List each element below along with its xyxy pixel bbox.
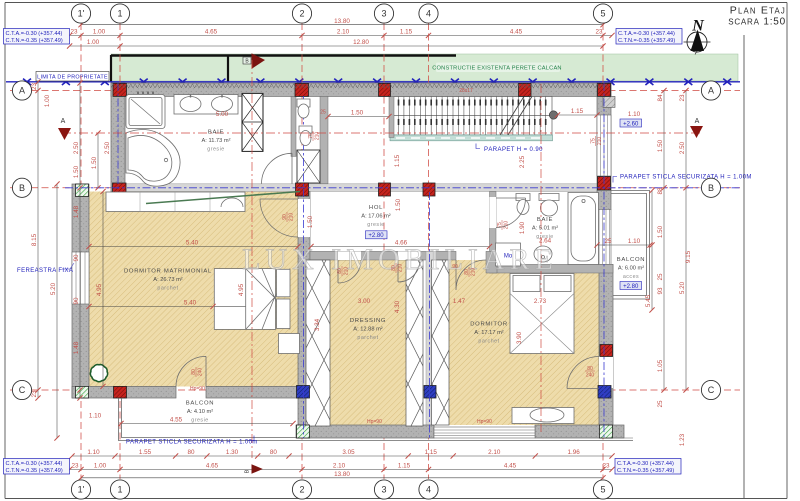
svg-text:12.80: 12.80 xyxy=(353,39,369,46)
svg-text:LIMITA DE PROPRIETATE: LIMITA DE PROPRIETATE xyxy=(37,75,108,81)
svg-text:SCARA 1:50: SCARA 1:50 xyxy=(728,17,786,28)
svg-text:HOL: HOL xyxy=(369,205,383,211)
svg-text:23: 23 xyxy=(31,390,38,398)
svg-text:1.15: 1.15 xyxy=(400,29,413,36)
svg-text:1.10: 1.10 xyxy=(89,413,102,420)
svg-text:13.80: 13.80 xyxy=(334,471,350,478)
svg-text:88: 88 xyxy=(657,187,664,195)
svg-text:1: 1 xyxy=(117,9,122,19)
svg-text:B: B xyxy=(245,469,251,473)
svg-text:C.T.A.=-0.30 (+357.44): C.T.A.=-0.30 (+357.44) xyxy=(6,461,63,467)
svg-text:1.50: 1.50 xyxy=(657,225,664,238)
svg-text:A: A xyxy=(19,86,25,96)
svg-text:C.T.N.=-0.35 (+357.49): C.T.N.=-0.35 (+357.49) xyxy=(6,38,63,44)
svg-text:1.15: 1.15 xyxy=(394,154,401,167)
svg-text:Hp=90: Hp=90 xyxy=(367,419,382,425)
svg-text:3.00: 3.00 xyxy=(358,298,371,305)
svg-text:25: 25 xyxy=(604,238,612,245)
svg-text:23: 23 xyxy=(602,463,610,470)
svg-text:1: 1 xyxy=(117,485,122,495)
svg-text:1.50: 1.50 xyxy=(395,198,402,211)
svg-text:1': 1' xyxy=(78,9,85,19)
svg-text:1.48: 1.48 xyxy=(73,341,80,354)
svg-text:A: A xyxy=(695,118,700,125)
svg-text:DRESSING: DRESSING xyxy=(350,318,386,324)
svg-text:1.10: 1.10 xyxy=(628,111,641,118)
svg-text:90: 90 xyxy=(452,264,458,270)
svg-text:A: 11.73 m²: A: 11.73 m² xyxy=(202,138,231,144)
svg-text:1.47: 1.47 xyxy=(453,298,466,305)
svg-text:A: A xyxy=(708,86,714,96)
svg-text:C.T.A.=-0.30 (+357.44): C.T.A.=-0.30 (+357.44) xyxy=(6,31,63,37)
svg-text:B: B xyxy=(19,183,25,193)
svg-text:gresie: gresie xyxy=(536,234,553,240)
svg-text:1.50: 1.50 xyxy=(307,215,314,228)
svg-text:4.45: 4.45 xyxy=(510,29,523,36)
svg-text:acces: acces xyxy=(623,274,639,280)
svg-text:BALCON: BALCON xyxy=(186,401,214,407)
svg-text:2.10: 2.10 xyxy=(333,463,346,470)
svg-text:C.T.N.=-0.35 (+357.49): C.T.N.=-0.35 (+357.49) xyxy=(6,468,63,474)
svg-text:4.95: 4.95 xyxy=(96,283,103,296)
svg-text:Hp=90: Hp=90 xyxy=(477,419,492,425)
svg-text:1.50: 1.50 xyxy=(351,110,364,117)
svg-text:1.30: 1.30 xyxy=(226,449,239,456)
svg-text:4.65: 4.65 xyxy=(205,29,218,36)
svg-text:240: 240 xyxy=(586,373,595,379)
svg-text:90: 90 xyxy=(73,254,80,262)
svg-text:A: 5.01 m²: A: 5.01 m² xyxy=(532,226,558,232)
svg-text:3.05: 3.05 xyxy=(342,449,355,456)
svg-text:1.55: 1.55 xyxy=(139,449,152,456)
svg-text:5.20: 5.20 xyxy=(50,282,57,295)
svg-text:1.50: 1.50 xyxy=(91,156,98,169)
svg-text:210: 210 xyxy=(315,132,321,141)
svg-text:BALCON: BALCON xyxy=(617,257,645,263)
svg-text:C.T.A.=-0.30 (+357.44): C.T.A.=-0.30 (+357.44) xyxy=(618,31,675,37)
svg-text:210: 210 xyxy=(504,221,510,230)
svg-text:1.50: 1.50 xyxy=(73,165,80,178)
svg-text:+2.80: +2.80 xyxy=(623,284,639,290)
svg-text:C.T.N.=-0.35 (+357.49): C.T.N.=-0.35 (+357.49) xyxy=(618,38,675,44)
svg-text:1.00: 1.00 xyxy=(94,463,107,470)
svg-text:4.45: 4.45 xyxy=(504,463,517,470)
svg-text:1.96: 1.96 xyxy=(567,449,580,456)
svg-text:4.30: 4.30 xyxy=(394,300,401,313)
svg-text:80: 80 xyxy=(270,449,278,456)
svg-text:1.15: 1.15 xyxy=(398,463,411,470)
svg-text:9.15: 9.15 xyxy=(685,250,692,263)
svg-text:90: 90 xyxy=(73,297,80,305)
svg-text:23: 23 xyxy=(31,83,38,91)
svg-text:4.66: 4.66 xyxy=(395,240,408,247)
svg-text:2.50: 2.50 xyxy=(679,141,686,154)
svg-text:5.20: 5.20 xyxy=(679,281,686,294)
svg-text:C.T.A.=-0.30 (+357.44): C.T.A.=-0.30 (+357.44) xyxy=(617,461,674,467)
svg-text:1.15: 1.15 xyxy=(571,108,584,115)
svg-text:210: 210 xyxy=(597,137,603,146)
svg-text:84: 84 xyxy=(657,94,664,102)
svg-text:BΑIE: BΑIE xyxy=(208,130,224,136)
svg-text:4.55: 4.55 xyxy=(170,417,183,424)
svg-text:1.00: 1.00 xyxy=(93,29,106,36)
svg-text:4.95: 4.95 xyxy=(238,283,245,296)
svg-text:4.65: 4.65 xyxy=(206,463,219,470)
svg-text:+2.60: +2.60 xyxy=(623,122,639,128)
svg-text:gresie: gresie xyxy=(367,222,384,228)
svg-text:1.23: 1.23 xyxy=(679,433,686,446)
svg-text:2.10: 2.10 xyxy=(488,449,501,456)
svg-text:DORMITOR MATRIMONIAL: DORMITOR MATRIMONIAL xyxy=(124,269,212,275)
svg-text:1': 1' xyxy=(78,485,85,495)
svg-text:1.90: 1.90 xyxy=(519,221,526,234)
svg-text:2.73: 2.73 xyxy=(534,298,547,305)
svg-text:C.T.N.=-0.35 (+357.49): C.T.N.=-0.35 (+357.49) xyxy=(617,468,674,474)
svg-text:C: C xyxy=(19,385,26,395)
svg-text:1.48: 1.48 xyxy=(73,205,80,218)
svg-text:parchet: parchet xyxy=(157,285,178,291)
svg-text:240: 240 xyxy=(198,368,204,377)
svg-text:A: A xyxy=(61,118,66,125)
svg-text:gresie: gresie xyxy=(207,146,224,152)
svg-text:210: 210 xyxy=(471,268,477,277)
svg-text:4: 4 xyxy=(426,9,431,19)
svg-text:3.34: 3.34 xyxy=(314,318,321,331)
svg-text:parchet: parchet xyxy=(478,338,499,344)
svg-text:93: 93 xyxy=(657,287,664,295)
svg-text:1.00: 1.00 xyxy=(87,39,100,46)
svg-text:23: 23 xyxy=(70,29,78,36)
svg-text:A: 26.73 m²: A: 26.73 m² xyxy=(153,277,183,283)
svg-text:+2.80: +2.80 xyxy=(368,233,384,239)
svg-text:PARAPET STICLA SECURIZATA H =: PARAPET STICLA SECURIZATA H = 1.00m xyxy=(126,440,258,446)
svg-text:1.05: 1.05 xyxy=(657,359,664,372)
svg-text:28x17: 28x17 xyxy=(459,88,473,94)
svg-text:parchet: parchet xyxy=(357,335,378,341)
svg-text:2: 2 xyxy=(299,485,304,495)
svg-text:1.10: 1.10 xyxy=(628,238,641,245)
svg-text:13.80: 13.80 xyxy=(334,18,350,25)
svg-text:2: 2 xyxy=(299,9,304,19)
svg-text:210: 210 xyxy=(289,213,295,222)
svg-text:4: 4 xyxy=(426,485,431,495)
svg-text:1.10: 1.10 xyxy=(87,449,100,456)
svg-text:5.40: 5.40 xyxy=(186,240,199,247)
svg-text:PΑRAPET H = 0.90: PΑRAPET H = 0.90 xyxy=(484,147,543,153)
svg-text:2.25: 2.25 xyxy=(519,155,526,168)
svg-text:BΑIE: BΑIE xyxy=(537,217,553,223)
svg-text:1.50: 1.50 xyxy=(657,139,664,152)
svg-text:25: 25 xyxy=(657,273,664,281)
svg-text:A: 4.10 m²: A: 4.10 m² xyxy=(187,409,213,415)
svg-text:25: 25 xyxy=(657,400,664,408)
svg-text:A: 6.00 m²: A: 6.00 m² xyxy=(618,266,644,272)
svg-text:5: 5 xyxy=(600,485,605,495)
svg-text:3.90: 3.90 xyxy=(516,331,523,344)
svg-text:5.40: 5.40 xyxy=(184,300,197,307)
svg-text:5: 5 xyxy=(600,9,605,19)
svg-text:3: 3 xyxy=(381,9,386,19)
svg-text:5.45: 5.45 xyxy=(645,294,652,307)
svg-text:210: 210 xyxy=(344,267,350,276)
svg-text:23: 23 xyxy=(595,29,603,36)
svg-text:gresie: gresie xyxy=(191,417,208,423)
svg-text:2.50: 2.50 xyxy=(104,141,111,154)
svg-text:DORMITOR: DORMITOR xyxy=(470,322,508,328)
svg-text:Hp=90: Hp=90 xyxy=(190,386,205,392)
svg-text:A: 17.06 m²: A: 17.06 m² xyxy=(361,214,391,220)
svg-text:A: 17.17 m²: A: 17.17 m² xyxy=(474,330,504,336)
svg-text:25: 25 xyxy=(320,110,326,116)
svg-text:A: 12.88 m²: A: 12.88 m² xyxy=(353,327,383,333)
svg-text:23: 23 xyxy=(71,463,79,470)
svg-text:210: 210 xyxy=(398,264,404,273)
svg-text:PARAPET STICLA SECURIZATA H =: PARAPET STICLA SECURIZATA H = 1.00M xyxy=(620,175,752,181)
svg-text:1.00: 1.00 xyxy=(44,94,51,107)
svg-text:2.50: 2.50 xyxy=(73,141,80,154)
svg-text:B: B xyxy=(708,183,714,193)
svg-text:23: 23 xyxy=(679,94,686,102)
svg-text:CONSTRUCTIE EXISTENTA PERETE C: CONSTRUCTIE EXISTENTA PERETE CALCAN xyxy=(432,66,562,72)
svg-text:80: 80 xyxy=(187,449,195,456)
svg-text:C: C xyxy=(708,385,715,395)
svg-text:5.00: 5.00 xyxy=(216,111,229,118)
svg-text:1.15: 1.15 xyxy=(425,449,438,456)
svg-text:PLAN ETAJ: PLAN ETAJ xyxy=(730,5,786,17)
svg-text:2.10: 2.10 xyxy=(337,29,350,36)
svg-text:3: 3 xyxy=(381,485,386,495)
svg-text:8.15: 8.15 xyxy=(31,233,38,246)
